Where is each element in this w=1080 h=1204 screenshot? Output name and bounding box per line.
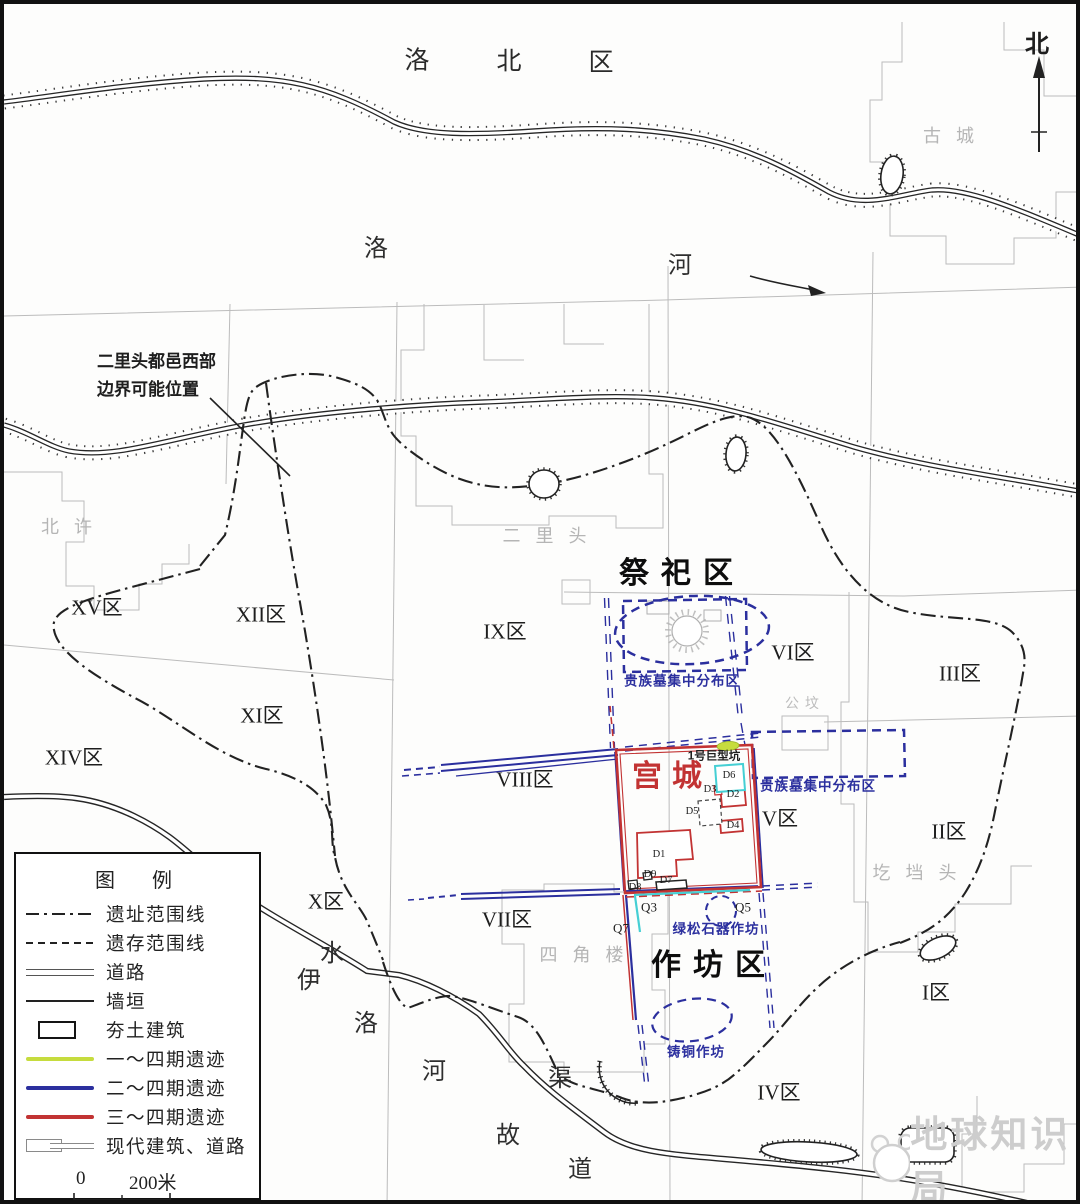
legend-row-label: 遗址范围线 (106, 901, 206, 927)
zone-label-iv: IV区 (757, 1083, 800, 1104)
district-char-luo: 洛 (404, 49, 429, 74)
north-label: 北 (1025, 33, 1049, 57)
river-char-qu2: 渠 (548, 1067, 572, 1091)
zone-label-vi: VI区 (771, 643, 814, 664)
scale-start-value: 0 (76, 1168, 86, 1190)
palace-city-title: 宫城 (632, 762, 712, 792)
turquoise-workshop-label: 绿松石器作坊 (673, 922, 760, 936)
legend-row-label: 夯土建筑 (106, 1017, 186, 1043)
gray-name-sijiaolou: 四角楼 (540, 946, 639, 964)
watermark: 地球知识局 (866, 1126, 1080, 1190)
legend-row: 遗存范围线 (24, 928, 259, 957)
gray-name-gongfen: 公坟 (785, 698, 825, 712)
river-char-luo: 洛 (354, 1012, 378, 1036)
river-char-gu: 故 (496, 1124, 520, 1148)
gray-name-gedangtou: 圪垱头 (873, 864, 972, 882)
gray-name-beixu: 北许 (41, 518, 107, 536)
legend-row-label: 墙垣 (106, 988, 146, 1014)
building-d5 (698, 799, 722, 826)
zone-label-viii: VIII区 (496, 770, 553, 791)
levee-north (4, 78, 1080, 237)
river-char-luo-top: 洛 (364, 237, 388, 261)
feature-label-q7: Q7 (613, 922, 629, 935)
zone-label-v: V区 (762, 809, 798, 830)
zone-label-xi: XI区 (240, 706, 283, 727)
legend-row: 道路 (24, 957, 259, 986)
building-label-d7: D7 (660, 876, 673, 887)
panda-logo-icon (866, 1130, 910, 1186)
river-char-he-top: 河 (668, 254, 692, 278)
legend-row: 现代建筑、道路 (24, 1131, 259, 1160)
watermark-text: 地球知识局 (910, 1104, 1080, 1204)
legend-row: 夯土建筑 (24, 1015, 259, 1044)
zone-label-vii: VII区 (482, 910, 532, 931)
zone-label-xii: XII区 (236, 605, 286, 626)
legend-symbol-phase1-4 (24, 1049, 96, 1069)
north-arrow-icon (1031, 56, 1047, 152)
annotation-leader-line (210, 398, 290, 476)
legend-symbol-rammed-earth (24, 1020, 96, 1040)
legend-symbol-phase3-4 (24, 1107, 96, 1127)
period-roads-blue (402, 596, 818, 1087)
legend: 图 例 遗址范围线 遗存范围线 道路 墙垣 夯土建筑 一～四期遗迹 二～四期遗迹 (14, 852, 261, 1200)
river-char-yi: 伊 (297, 969, 321, 993)
legend-row-label: 道路 (106, 959, 146, 985)
legend-row-label: 遗存范围线 (106, 930, 206, 956)
erlitou-site-map: 洛北区北古城洛河二里头都邑西部 边界可能位置北许二里头XV区XII区IX区祭祀区… (0, 0, 1080, 1204)
legend-row: 一～四期遗迹 (24, 1044, 259, 1073)
bronze-workshop-label: 铸铜作坊 (667, 1045, 725, 1059)
building-label-d1: D1 (653, 850, 666, 861)
zone-label-xiv: XIV区 (45, 748, 103, 769)
zone-label-i: I区 (922, 983, 950, 1004)
building-label-d3: D3 (704, 785, 717, 796)
legend-row: 墙垣 (24, 986, 259, 1015)
building-label-d2: D2 (727, 790, 740, 801)
zone-label-iii: III区 (939, 664, 981, 685)
zone-label-x: X区 (308, 892, 344, 913)
building-label-d6: D6 (723, 771, 736, 782)
feature-label-q3: Q3 (641, 901, 657, 914)
sacrificial-area-title: 祭祀区 (619, 559, 745, 589)
zone-label-xv: XV区 (71, 598, 122, 619)
legend-symbol-modern (24, 1136, 96, 1156)
workshop-area-title: 作坊区 (651, 951, 777, 981)
legend-row: 二～四期遗迹 (24, 1073, 259, 1102)
boundary-annotation: 二里头都邑西部 边界可能位置 (97, 348, 216, 404)
river-char-dao: 道 (568, 1158, 592, 1182)
legend-row-label: 三～四期遗迹 (106, 1104, 226, 1130)
building-label-d5: D5 (686, 807, 699, 818)
legend-row-label: 二～四期遗迹 (106, 1075, 226, 1101)
river-char-he: 河 (422, 1060, 446, 1084)
legend-row: 遗址范围线 (24, 899, 259, 928)
legend-symbol-site-boundary (24, 904, 96, 924)
noble-tombs-label-east: 贵族墓集中分布区 (760, 779, 876, 793)
building-label-d4: D4 (727, 821, 740, 832)
legend-title: 图 例 (24, 864, 259, 893)
legend-symbol-remains-boundary (24, 933, 96, 953)
gray-name-gucheng: 古城 (923, 127, 989, 145)
scale-bar-line (70, 1190, 190, 1204)
zone-label-ix: IX区 (483, 622, 526, 643)
scale-bar: 0 200米 (24, 1168, 259, 1204)
building-label-d8: D8 (629, 883, 642, 894)
district-char-bei: 北 (496, 50, 521, 75)
building-label-d9: D9 (644, 870, 657, 881)
district-char-qu: 区 (588, 51, 613, 76)
river-char-shui: 水 (320, 942, 344, 966)
sacrificial-area-gray-features (647, 601, 721, 650)
noble-tombs-label-north: 贵族墓集中分布区 (624, 674, 740, 688)
legend-row: 三～四期遗迹 (24, 1102, 259, 1131)
legend-row-label: 现代建筑、道路 (106, 1133, 246, 1159)
ponds (529, 155, 959, 1165)
legend-symbol-road (24, 962, 96, 982)
feature-label-q5: Q5 (735, 901, 751, 914)
river-flow-arrow (750, 276, 826, 296)
zone-label-ii: II区 (932, 822, 967, 843)
legend-row-label: 一～四期遗迹 (106, 1046, 226, 1072)
legend-symbol-phase2-4 (24, 1078, 96, 1098)
legend-symbol-wall (24, 991, 96, 1011)
giant-pit-label: 1号巨型坑 (688, 751, 740, 763)
gray-name-erlitou: 二里头 (503, 527, 602, 545)
